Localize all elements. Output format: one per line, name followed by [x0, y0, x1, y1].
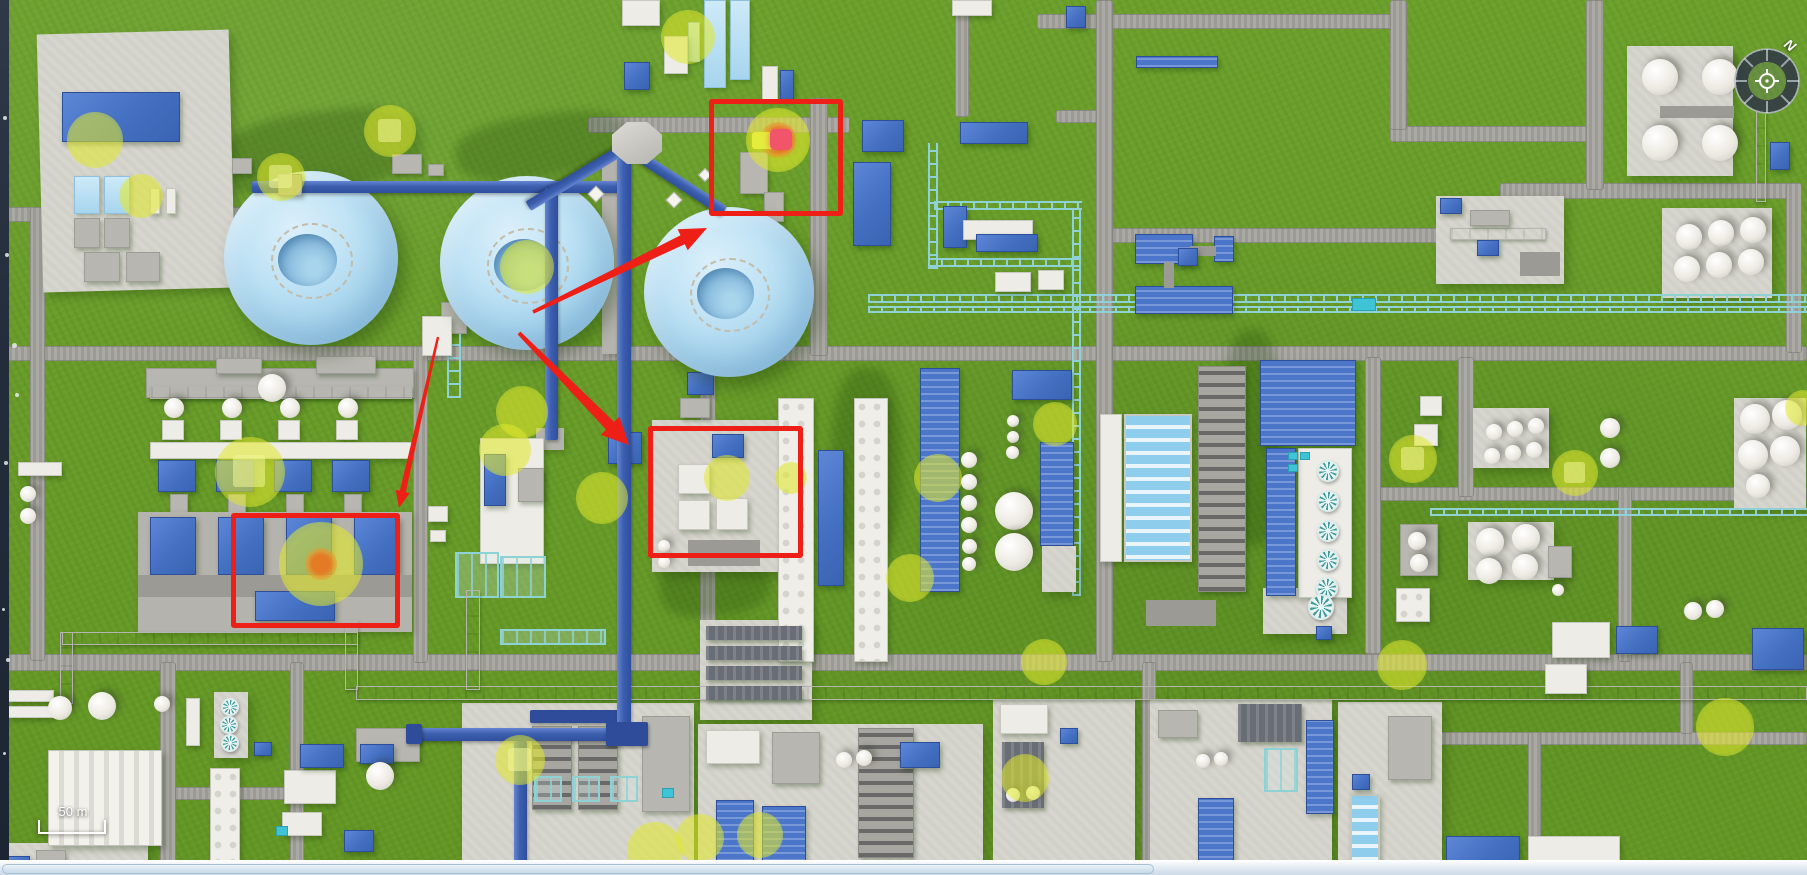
white-building [220, 420, 242, 440]
panel-building [854, 398, 888, 662]
road [1786, 183, 1802, 353]
blue-roof-building [1066, 6, 1086, 28]
blue-roof-building [150, 517, 196, 575]
teal-unit [276, 826, 288, 836]
pipe-rack [1450, 228, 1546, 240]
storage-tank [1528, 418, 1544, 434]
road [160, 662, 176, 862]
storage-tank [338, 398, 358, 418]
sensor-marker[interactable] [1021, 639, 1067, 685]
storage-tank [961, 517, 977, 533]
white-building [1038, 270, 1064, 290]
scale-label: 50 m [38, 804, 108, 819]
sensor-marker[interactable] [257, 153, 305, 201]
gray-building [680, 398, 710, 418]
road [1390, 0, 1407, 130]
sensor-marker[interactable] [1033, 402, 1077, 446]
blue-roof-building [1012, 370, 1072, 400]
plant-map-app: 50 m N [0, 0, 1807, 875]
road [1037, 14, 1393, 29]
storage-tank [962, 557, 976, 571]
scale-line [38, 820, 106, 834]
blue-roof-building [1616, 626, 1658, 654]
white-building [762, 66, 778, 100]
white-building [430, 530, 446, 542]
sensor-highlight [378, 119, 402, 143]
road [413, 346, 428, 663]
white-building [282, 812, 322, 836]
slotted-building [1198, 366, 1246, 592]
dark-building [706, 666, 802, 680]
pipe-hub [612, 122, 662, 164]
blue-roof-building [624, 62, 650, 90]
gray-building [216, 358, 262, 374]
dark-building [1238, 704, 1302, 742]
cooling-fan [1317, 460, 1339, 482]
pipe-rack [1756, 110, 1766, 202]
storage-tank [961, 474, 977, 490]
storage-tank [1702, 59, 1738, 95]
storage-tank [856, 750, 872, 766]
blue-panel-array [1214, 236, 1234, 262]
sensor-marker[interactable] [495, 735, 545, 785]
sidebar-edge [0, 0, 9, 862]
pipeline [606, 722, 648, 746]
storage-tank [1600, 448, 1620, 468]
blue-roof-building [853, 162, 891, 246]
gray-strip [1146, 600, 1216, 626]
pipeline [545, 188, 558, 440]
annotation-rect [648, 426, 803, 558]
storage-tank [961, 495, 977, 511]
white-building [336, 420, 358, 440]
white-building [186, 698, 200, 746]
particle-dot [4, 461, 8, 465]
light-blue-panel [74, 176, 100, 214]
teal-unit [1288, 464, 1298, 472]
louver-building [1350, 794, 1380, 862]
sensor-marker[interactable] [886, 554, 934, 602]
white-building [428, 506, 448, 522]
blue-roof-building [1477, 240, 1499, 256]
sensor-highlight [269, 165, 291, 187]
pipeline [617, 158, 631, 736]
cooling-fan [1317, 490, 1339, 512]
gray-building [392, 154, 422, 174]
gray-building [1470, 210, 1510, 226]
sensor-marker[interactable] [119, 174, 163, 218]
cooling-fan [220, 716, 238, 734]
cooling-fan [1317, 549, 1339, 571]
cooling-fan [221, 698, 239, 716]
storage-tank [88, 692, 116, 720]
blue-roof-building [1770, 142, 1790, 170]
gray-strip [1164, 262, 1174, 288]
storage-tank [258, 374, 286, 402]
pipe-rack [868, 306, 1807, 313]
white-building [8, 690, 54, 702]
sphere-crater [278, 234, 337, 286]
gas-sphere [644, 207, 814, 377]
sensor-marker[interactable] [1389, 435, 1437, 483]
pipe-rack [928, 258, 1080, 267]
pipe-rack [62, 632, 358, 645]
road [1586, 0, 1604, 190]
white-building [166, 188, 176, 214]
white-building [284, 770, 336, 804]
storage-tank [1674, 256, 1700, 282]
storage-tank [962, 539, 977, 554]
blue-roof-building [976, 234, 1038, 252]
panel-building [210, 768, 240, 862]
gray-building [344, 494, 362, 514]
sensor-highlight [508, 748, 531, 771]
road [1390, 126, 1590, 142]
storage-tank [1684, 602, 1702, 620]
particle-dot [15, 393, 19, 397]
cooling-fan [1317, 520, 1339, 542]
storage-tank [1512, 554, 1538, 580]
blue-roof-building [254, 742, 272, 756]
sensor-marker[interactable] [576, 472, 628, 524]
blue-roof-building [344, 830, 374, 852]
pipe-rack [345, 620, 358, 690]
storage-tank [1410, 554, 1428, 572]
road [1365, 357, 1381, 654]
white-building [1100, 414, 1122, 562]
map-scale-bar: 50 m [38, 804, 108, 834]
white-building [952, 0, 992, 16]
white-building [1420, 396, 1442, 416]
gray-building [286, 494, 304, 514]
storage-tank [1552, 584, 1564, 596]
storage-tank [995, 492, 1033, 530]
storage-tank [1476, 558, 1502, 584]
storage-tank [995, 533, 1033, 571]
gray-building [84, 252, 120, 282]
storage-tank [1706, 600, 1724, 618]
storage-tank [1507, 421, 1523, 437]
white-building [422, 316, 452, 356]
dark-building [706, 686, 802, 700]
storage-tank [20, 508, 36, 524]
storage-tank [1512, 524, 1540, 552]
white-building [1528, 836, 1620, 862]
scrollbar-thumb[interactable] [2, 864, 1154, 874]
gray-building [232, 158, 252, 174]
sensor-marker[interactable] [479, 424, 531, 476]
storage-tank [1526, 442, 1542, 458]
road [955, 0, 969, 117]
gray-building [74, 218, 100, 248]
storage-tank [1007, 415, 1019, 427]
sensor-marker[interactable] [500, 240, 554, 294]
white-building [18, 462, 62, 476]
sensor-marker[interactable] [676, 814, 724, 862]
white-building [278, 420, 300, 440]
storage-tank [1600, 418, 1620, 438]
gray-building [316, 356, 376, 374]
sensor-highlight [1401, 447, 1423, 469]
pipe-frame [610, 776, 638, 802]
dark-building [706, 646, 802, 660]
white-building [162, 420, 184, 440]
pipe-frame [500, 556, 546, 598]
pipeline [406, 724, 422, 744]
sensor-marker[interactable] [67, 112, 123, 168]
compass[interactable]: N [1734, 48, 1800, 114]
sensor-highlight [233, 455, 265, 487]
particle-dot [2, 608, 5, 611]
concrete-pad [1042, 546, 1076, 592]
blue-roof-building [1446, 836, 1520, 862]
blue-panel-array [1135, 286, 1233, 314]
pipe-frame [534, 776, 562, 802]
pipe-frame [500, 629, 606, 645]
sensor-marker[interactable] [1377, 640, 1427, 690]
blue-roof-building [1060, 728, 1078, 744]
sensor-marker[interactable] [364, 105, 416, 157]
pipe-rack [356, 686, 1807, 700]
cooling-fan [221, 734, 239, 752]
blue-panel-array [1260, 360, 1356, 446]
blue-roof-building [1752, 628, 1804, 670]
storage-tank [280, 398, 300, 418]
road [1096, 0, 1113, 662]
storage-tank [1505, 445, 1521, 461]
gray-building [428, 164, 444, 176]
gray-building [1388, 716, 1432, 780]
teal-unit [1352, 298, 1376, 311]
sensor-highlight [1564, 462, 1585, 483]
blue-roof-building [332, 460, 370, 492]
storage-tank [1007, 431, 1019, 443]
gray-building [1548, 546, 1572, 578]
pipe-frame [1264, 748, 1298, 792]
particle-dot [6, 658, 10, 662]
storage-tank [164, 398, 184, 418]
storage-tank [1642, 125, 1678, 161]
white-building [1000, 704, 1048, 734]
white-building [995, 272, 1031, 292]
white-building [1552, 622, 1610, 658]
storage-tank [366, 762, 394, 790]
blue-roof-building [818, 450, 844, 586]
teal-unit [662, 788, 674, 798]
storage-tank [1196, 754, 1210, 768]
gray-strip [1660, 106, 1734, 118]
blue-panel-array [1136, 56, 1218, 68]
annotation-rect [709, 99, 843, 216]
blue-roof-building [900, 742, 940, 768]
blue-panel-array [1198, 798, 1234, 862]
white-building [622, 0, 660, 26]
louver-building [1124, 414, 1192, 562]
teal-unit [1300, 452, 1310, 460]
gray-strip [1520, 252, 1560, 276]
blue-roof-building [1316, 626, 1332, 640]
particle-dot [3, 116, 7, 120]
storage-tank [1738, 440, 1768, 470]
sensor-marker[interactable] [661, 10, 715, 64]
white-building [706, 730, 760, 764]
sensor-marker[interactable] [914, 454, 962, 502]
storage-tank [48, 696, 72, 720]
storage-tank [1740, 217, 1766, 243]
storage-tank [1484, 448, 1500, 464]
gray-building [518, 468, 544, 502]
storage-tank [1740, 404, 1770, 434]
pipe-rack [466, 590, 480, 690]
storage-tank [1486, 424, 1502, 440]
light-blue-panel [730, 0, 750, 80]
storage-tank [1408, 532, 1426, 550]
sensor-marker[interactable] [737, 812, 783, 858]
storage-tank [1708, 220, 1734, 246]
gray-building [772, 732, 820, 784]
storage-tank [222, 398, 242, 418]
blue-panel-array [1306, 720, 1334, 814]
pipe-rack [868, 294, 1807, 303]
blue-roof-building [158, 460, 196, 492]
pipe-rack [60, 632, 73, 704]
gray-building [1158, 710, 1198, 738]
sensor-marker[interactable] [1696, 698, 1754, 756]
storage-tank [20, 486, 36, 502]
road [0, 346, 1807, 361]
blue-panel-array [1040, 442, 1074, 546]
storage-tank [1476, 528, 1504, 556]
particle-dot [5, 253, 9, 257]
gas-sphere [224, 171, 398, 345]
blue-roof-building [1178, 248, 1198, 266]
gray-building [170, 494, 188, 514]
storage-tank [154, 696, 170, 712]
pipe-frame [572, 776, 600, 802]
locate-icon [1753, 67, 1781, 95]
cooling-fan [1308, 594, 1334, 620]
blue-roof-building [687, 372, 714, 395]
storage-tank [836, 752, 852, 768]
gray-building [126, 252, 160, 282]
panel-building [1396, 588, 1430, 622]
pipe-rack [1430, 508, 1807, 516]
storage-tank [1770, 436, 1800, 466]
storage-tank [1702, 125, 1738, 161]
annotation-rect [231, 513, 400, 628]
blue-roof-building [300, 744, 344, 768]
storage-tank [961, 452, 977, 468]
storage-tank [1746, 474, 1770, 498]
storage-tank [1642, 59, 1678, 95]
storage-tank [1214, 752, 1228, 766]
blue-roof-building [780, 70, 794, 100]
map-canvas[interactable]: 50 m [0, 0, 1807, 862]
road [1458, 357, 1474, 497]
white-building [1545, 664, 1587, 694]
storage-tank [1676, 224, 1702, 250]
gray-building [104, 218, 130, 248]
storage-tank [1006, 446, 1019, 459]
particle-dot [12, 343, 17, 348]
dark-building [706, 626, 802, 640]
blue-roof-building [1440, 198, 1462, 214]
blue-roof-building [1352, 774, 1370, 790]
teal-unit [1288, 452, 1298, 460]
road [0, 654, 1807, 671]
horizontal-scrollbar[interactable] [0, 860, 1807, 875]
blue-roof-building [862, 120, 904, 152]
blue-roof-building [360, 744, 394, 764]
storage-tank [1738, 249, 1764, 275]
sensor-marker[interactable] [215, 437, 285, 507]
particle-dot [3, 752, 6, 755]
sensor-marker[interactable] [1552, 450, 1598, 496]
blue-roof-building [960, 122, 1028, 144]
storage-tank [1706, 252, 1732, 278]
sensor-marker[interactable] [1001, 754, 1049, 802]
